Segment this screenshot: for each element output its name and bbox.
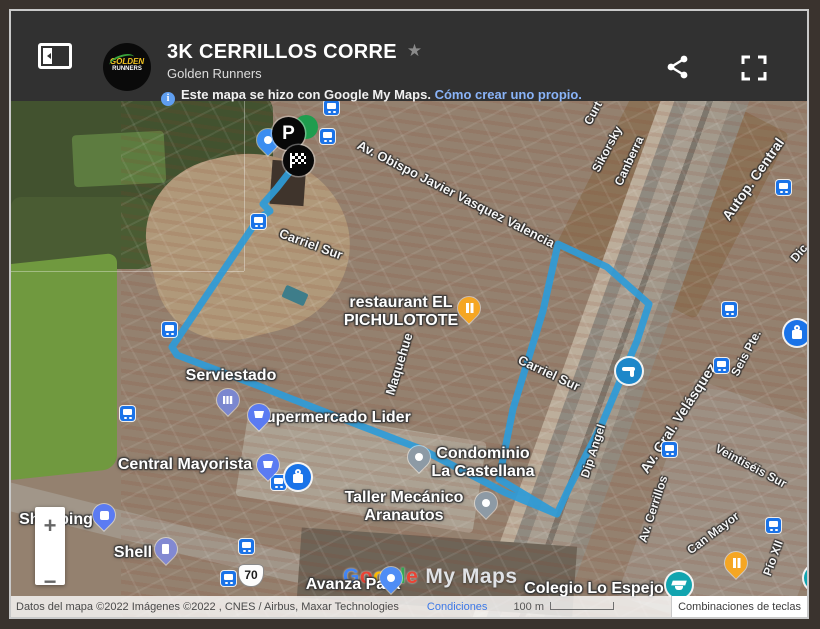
create-map-link[interactable]: Cómo crear uno propio. xyxy=(435,87,582,102)
header: GOLDEN RUNNERS 3K CERRILLOS CORRE Golden… xyxy=(11,11,807,101)
place-pin[interactable] xyxy=(475,492,497,526)
school-icon[interactable] xyxy=(666,572,692,598)
map-attribution: Datos del mapa ©2022 Imágenes ©2022 , CN… xyxy=(16,601,399,613)
shopping-bag-icon[interactable] xyxy=(784,320,807,346)
zoom-in-button[interactable]: + xyxy=(35,507,65,545)
gas-station-pin[interactable] xyxy=(155,538,177,572)
bus-stop-icon[interactable] xyxy=(662,442,677,457)
place-label: restaurant ELPICHULOTOTE xyxy=(344,294,458,330)
transit-station-icon[interactable] xyxy=(776,180,791,195)
bus-stop-icon[interactable] xyxy=(162,322,177,337)
mymaps-banner: Este mapa se hizo con Google My Maps. Có… xyxy=(161,87,582,106)
zoom-control: + − xyxy=(35,507,65,585)
bus-stop-icon[interactable] xyxy=(722,302,737,317)
bus-stop-icon[interactable] xyxy=(120,406,135,421)
terms-link[interactable]: Condiciones xyxy=(427,601,488,613)
restaurant-pin[interactable] xyxy=(725,552,747,586)
toggle-panel-icon[interactable] xyxy=(38,43,72,69)
page-title: 3K CERRILLOS CORRE xyxy=(167,41,397,64)
place-pin[interactable] xyxy=(408,446,430,480)
fullscreen-icon[interactable] xyxy=(741,55,767,81)
place-label: Supermercado Lider xyxy=(255,409,411,427)
bus-stop-icon[interactable] xyxy=(239,539,254,554)
keyboard-shortcuts-link[interactable]: Combinaciones de teclas xyxy=(671,596,807,617)
place-label: Serviestado xyxy=(186,367,277,385)
bus-stop-icon[interactable] xyxy=(766,518,781,533)
shopping-cart-pin[interactable] xyxy=(257,454,279,488)
shopping-bag-pin[interactable] xyxy=(93,504,115,538)
share-icon[interactable] xyxy=(667,55,689,79)
scale-control: 100 m xyxy=(513,601,614,613)
drinking-water-icon[interactable] xyxy=(616,358,642,384)
bus-stop-icon[interactable] xyxy=(251,214,266,229)
scale-label: 100 m xyxy=(513,601,544,613)
info-icon xyxy=(161,92,175,106)
place-label: Taller MecánicoAranautos xyxy=(345,489,464,525)
satellite-map[interactable]: Av. Obispo Javier Vasquez ValenciaCarrie… xyxy=(11,101,807,617)
map-logo[interactable]: GOLDEN RUNNERS xyxy=(103,43,151,91)
google-letter: e xyxy=(406,565,418,588)
my-maps-embed: GOLDEN RUNNERS 3K CERRILLOS CORRE Golden… xyxy=(9,9,809,619)
scale-bar xyxy=(550,602,614,610)
bus-stop-icon[interactable] xyxy=(714,358,729,373)
bus-stop-icon[interactable] xyxy=(221,571,236,586)
map-author: Golden Runners xyxy=(167,66,422,81)
star-icon xyxy=(407,41,422,61)
restaurant-pin[interactable] xyxy=(458,297,480,331)
mymaps-watermark-text: My Maps xyxy=(425,565,517,588)
start-pin-dot xyxy=(264,136,272,144)
serviestado-pin[interactable] xyxy=(217,389,239,423)
place-label: Central Mayorista xyxy=(118,456,252,474)
bus-stop-icon[interactable] xyxy=(320,129,335,144)
place-label: CondominioLa Castellana xyxy=(431,445,534,481)
map-footer: Datos del mapa ©2022 Imágenes ©2022 , CN… xyxy=(11,596,807,617)
place-label: Shell xyxy=(114,544,152,562)
shopping-bag-icon[interactable] xyxy=(285,464,311,490)
finish-flag-marker[interactable] xyxy=(283,145,314,176)
shopping-cart-pin[interactable] xyxy=(248,404,270,438)
title-block: 3K CERRILLOS CORRE Golden Runners xyxy=(167,41,422,81)
banner-text: Este mapa se hizo con Google My Maps. xyxy=(181,87,431,102)
